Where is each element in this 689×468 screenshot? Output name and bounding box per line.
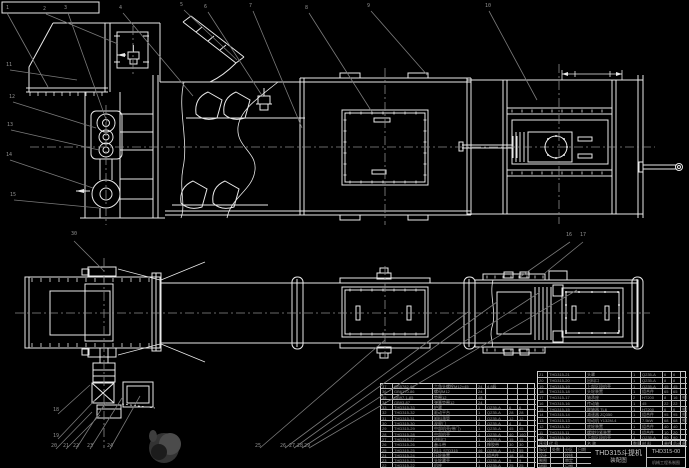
balloon-number: 27 (289, 444, 295, 449)
balloon-number: 3 (64, 6, 67, 11)
balloon-number: 7 (249, 4, 252, 9)
balloon-number: 25 (255, 444, 261, 449)
title-block: 标记处数分区日期设计校核制图审定描图日期 THD315斗提机 装配图 THD31… (537, 446, 686, 468)
balloon-number: 4 (119, 6, 122, 11)
balloon-number: 2 (43, 7, 46, 12)
plan-boot-section (475, 271, 643, 355)
table-cell: THD315-22 (393, 463, 433, 468)
table-cell: 日期 (564, 464, 577, 468)
balloon-number: 8 (305, 6, 308, 11)
bolt-dots (544, 135, 568, 159)
table-row: 22THD315-22机座1Q235-A2525 (381, 463, 534, 468)
balloon-number: 6 (204, 5, 207, 10)
elevation-bucket-section (160, 16, 305, 218)
balloon-number: 15 (10, 193, 16, 198)
plan-drive-unit (92, 348, 155, 418)
plan-head-section (25, 262, 205, 362)
balloon-number: 26 (280, 444, 286, 449)
table-cell: Q235-A (486, 463, 508, 468)
balloon-number: 28 (297, 444, 303, 449)
table-cell (551, 464, 564, 468)
balloon-number: 12 (9, 95, 15, 100)
balloon-number: 21 (63, 444, 69, 449)
balloon-number: 24 (107, 444, 113, 449)
table-cell: 22 (381, 463, 393, 468)
table-cell (577, 464, 591, 468)
plan-casing (160, 268, 638, 358)
elevation-boot-section (76, 53, 683, 218)
title-block-number: THD315-00 机械工程系制图 (647, 447, 685, 467)
balloon-number: 30 (71, 232, 77, 237)
balloon-number: 11 (6, 63, 12, 68)
balloon-number: 16 (566, 233, 572, 238)
drawing-org: 机械工程系制图 (647, 458, 685, 467)
balloon-number: 1 (6, 6, 9, 11)
balloon-number: 14 (6, 153, 12, 158)
table-cell: 描图 (538, 464, 551, 468)
table-cell: 1 (477, 463, 486, 468)
balloon-number: 19 (53, 434, 59, 439)
table-cell (528, 463, 536, 468)
balloon-number: 20 (51, 444, 57, 449)
watermark-logo (149, 430, 181, 463)
balloon-number: 29 (304, 444, 310, 449)
balloon-number: 22 (73, 444, 79, 449)
table-cell: 25 (508, 463, 518, 468)
frame-corner (2, 2, 99, 13)
parts-table-left: 37GB5782-86六角头螺栓M12×45244.8级36GB6170-86螺… (380, 383, 535, 468)
balloon-number: 17 (580, 233, 586, 238)
balloon-number: 10 (485, 4, 491, 9)
balloon-number: 23 (87, 444, 93, 449)
table-cell: 机座 (433, 463, 477, 468)
balloon-number: 9 (367, 4, 370, 9)
cad-sheet: 37GB5782-86六角头螺栓M12×45244.8级36GB6170-86螺… (0, 0, 689, 468)
elevation-head (26, 23, 165, 218)
title-block-name: THD315斗提机 装配图 (591, 447, 647, 467)
balloon-number: 18 (53, 408, 59, 413)
parts-table-right: 21THD315-21头罩1Q235-A6620THD315-20出料口1Q23… (537, 371, 686, 440)
balloon-number: 5 (180, 3, 183, 8)
drawing-type: 装配图 (610, 458, 627, 465)
table-row: 描图日期 (538, 464, 591, 468)
drawing-number: THD315-00 (647, 447, 685, 458)
balloon-number: 13 (7, 123, 13, 128)
drawing-title: THD315斗提机 (595, 449, 642, 458)
table-cell: 25 (518, 463, 528, 468)
title-block-grid: 标记处数分区日期设计校核制图审定描图日期 (538, 447, 591, 467)
elevation-middle-casing (300, 73, 471, 220)
